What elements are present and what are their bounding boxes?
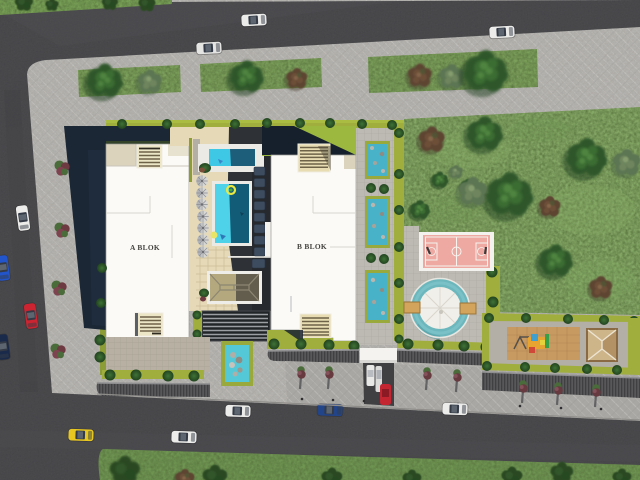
svg-text:B BLOK: B BLOK xyxy=(297,242,327,251)
svg-text:A BLOK: A BLOK xyxy=(130,243,160,252)
